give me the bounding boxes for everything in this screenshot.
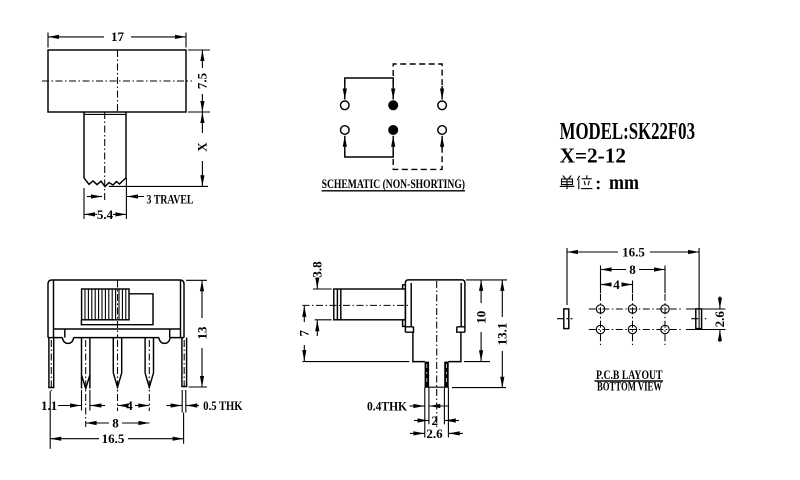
svg-text:13: 13 bbox=[195, 326, 210, 340]
svg-text:SCHEMATIC (NON-SHORTING): SCHEMATIC (NON-SHORTING) bbox=[322, 176, 465, 191]
svg-text:X: X bbox=[195, 142, 210, 152]
svg-text:BOTTOM VIEW: BOTTOM VIEW bbox=[597, 379, 662, 394]
svg-text:7.5: 7.5 bbox=[195, 72, 210, 89]
svg-text:X=2-12: X=2-12 bbox=[560, 143, 626, 167]
svg-text:2.6: 2.6 bbox=[426, 426, 443, 441]
svg-text:2.6: 2.6 bbox=[712, 311, 727, 328]
svg-text:0.4THK: 0.4THK bbox=[367, 399, 408, 414]
svg-text:8: 8 bbox=[629, 262, 636, 277]
svg-text:7: 7 bbox=[297, 330, 312, 337]
svg-text:4: 4 bbox=[126, 398, 133, 413]
svg-text:4: 4 bbox=[613, 277, 620, 292]
svg-text:10: 10 bbox=[473, 311, 488, 324]
svg-text:8: 8 bbox=[112, 416, 119, 431]
svg-text:3.8: 3.8 bbox=[310, 261, 325, 278]
svg-text:MODEL:SK22F03: MODEL:SK22F03 bbox=[560, 119, 695, 145]
svg-text:0.5 THK: 0.5 THK bbox=[203, 398, 243, 413]
svg-text:17: 17 bbox=[111, 29, 125, 44]
svg-text:3 TRAVEL: 3 TRAVEL bbox=[147, 192, 194, 207]
svg-text:5.4: 5.4 bbox=[97, 207, 114, 222]
svg-text:13.1: 13.1 bbox=[495, 323, 510, 346]
svg-text:16.5: 16.5 bbox=[102, 431, 125, 446]
svg-text:1.1: 1.1 bbox=[41, 398, 57, 413]
svg-text:mm: mm bbox=[609, 170, 639, 194]
svg-text:16.5: 16.5 bbox=[622, 245, 645, 260]
